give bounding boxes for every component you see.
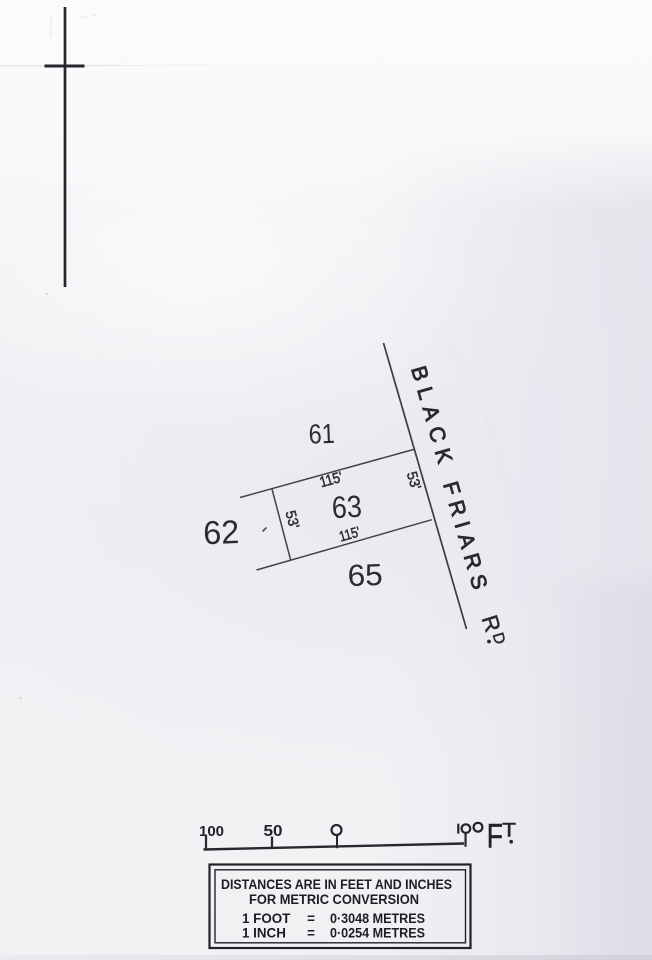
- svg-text:50: 50: [264, 823, 283, 840]
- svg-text:0·0254 METRES: 0·0254 METRES: [330, 926, 425, 941]
- svg-text:=: =: [307, 911, 315, 926]
- svg-text:F: F: [487, 818, 503, 856]
- svg-text:62: 62: [203, 513, 240, 551]
- svg-text:53': 53': [281, 509, 301, 531]
- svg-text:100: 100: [199, 823, 224, 840]
- svg-text:115': 115': [318, 469, 345, 492]
- svg-text:T: T: [502, 820, 516, 842]
- svg-text:115': 115': [338, 524, 363, 545]
- svg-text:63: 63: [331, 489, 363, 526]
- svg-text:FOR METRIC CONVERSION: FOR METRIC CONVERSION: [249, 892, 419, 907]
- svg-text:0·3048 METRES: 0·3048 METRES: [330, 911, 425, 926]
- svg-text:65: 65: [347, 558, 383, 593]
- svg-text:DISTANCES ARE IN FEET AND INCH: DISTANCES ARE IN FEET AND INCHES: [221, 877, 452, 892]
- svg-text:53': 53': [403, 470, 424, 492]
- svg-text:1 FOOT: 1 FOOT: [242, 911, 291, 926]
- svg-text:=: =: [307, 926, 315, 941]
- svg-text:FRIARS: FRIARS: [438, 479, 492, 592]
- svg-text:61: 61: [308, 418, 335, 450]
- svg-text:BLACK: BLACK: [406, 363, 457, 466]
- svg-text:1 INCH: 1 INCH: [242, 926, 286, 941]
- svg-text:D: D: [489, 631, 509, 647]
